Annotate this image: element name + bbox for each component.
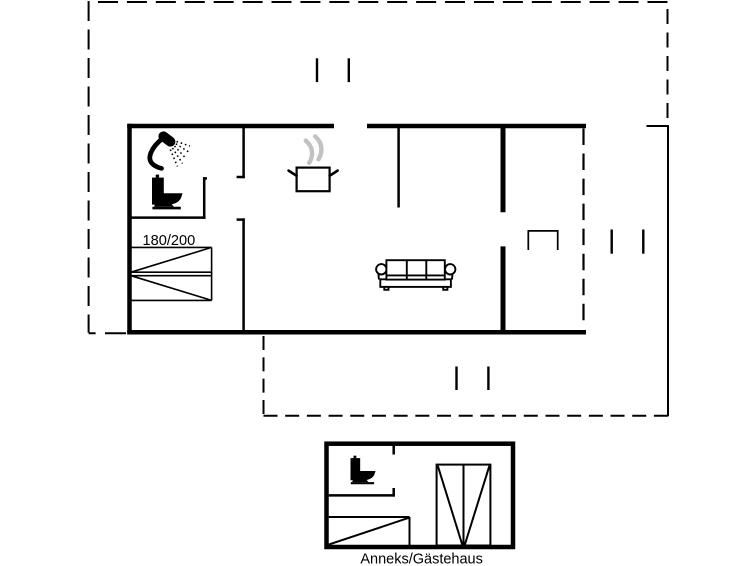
svg-text:180/200: 180/200 xyxy=(143,233,196,249)
svg-text:Anneks/Gästehaus: Anneks/Gästehaus xyxy=(360,551,483,566)
